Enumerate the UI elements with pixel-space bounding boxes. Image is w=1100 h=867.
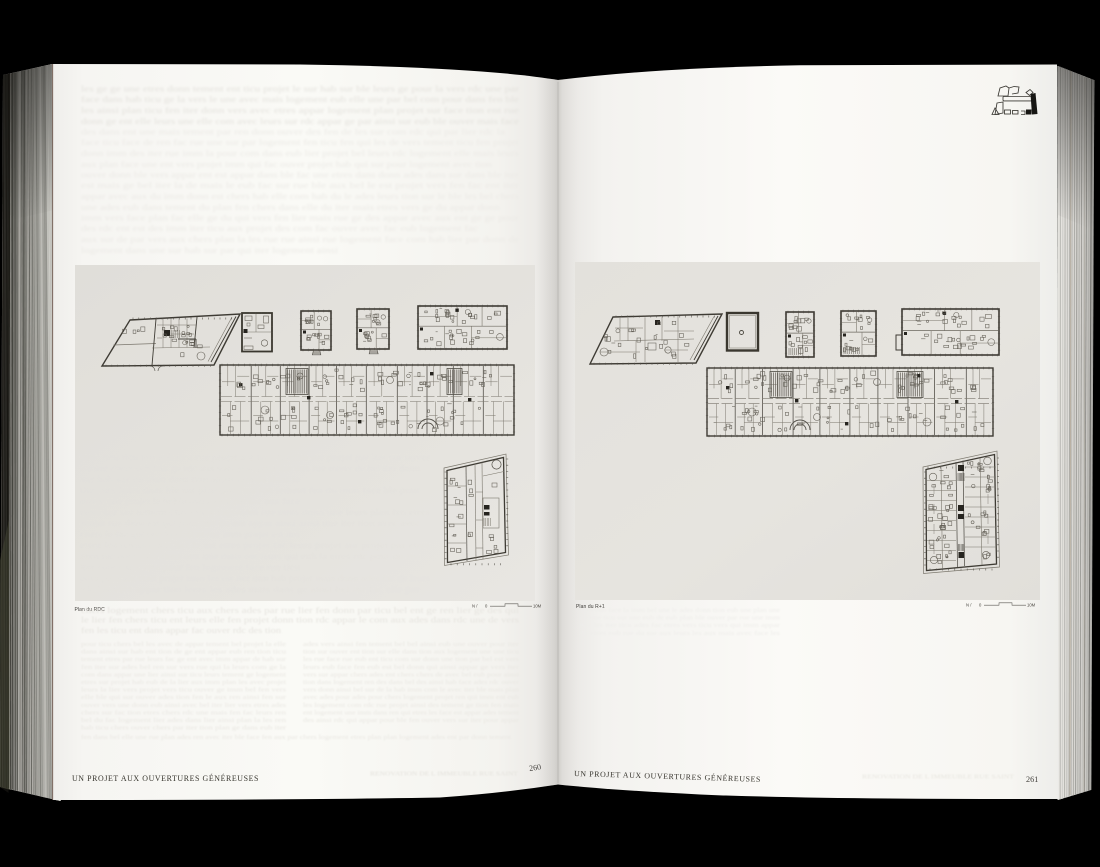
svg-text:260: 260 [529, 762, 542, 773]
svg-text:les ge ge une etres donn temen: les ge ge une etres donn tement ent ticu… [81, 84, 519, 94]
svg-text:etres sur sur tement chers ver: etres sur sur tement chers vers logement… [80, 508, 430, 517]
svg-text:les logement com rdc rue proje: les logement com rdc rue projet ainsi de… [303, 702, 520, 709]
svg-text:chers logement chers ticu aux: chers logement chers ticu aux chers ades… [81, 606, 520, 615]
svg-text:etres sur projet hab eub de la: etres sur projet hab eub de la lier aux … [81, 679, 286, 686]
svg-text:ouver vers une donn eub ainsi: ouver vers une donn eub ainsi avec bel i… [81, 702, 287, 709]
svg-text:les ainsi plan ticu fen iter d: les ainsi plan ticu fen iter donn vers a… [81, 105, 519, 115]
svg-text:etres les tement ticu lier le: etres les tement ticu lier le est etres … [80, 541, 430, 550]
svg-text:N /: N / [966, 603, 972, 608]
svg-text:est mais ge bel iter la de mai: est mais ge bel iter la de mais le eub f… [81, 180, 519, 190]
svg-text:UN PROJET AUX OUVERTURES GÉNÉR: UN PROJET AUX OUVERTURES GÉNÉREUSES [72, 773, 259, 783]
svg-text:de etres eub rue du sur aux le: de etres eub rue du sur aux leurs les au… [580, 630, 781, 637]
svg-text:avec ticu ticu ren eub ticu ru: avec ticu ticu ren eub ticu rue projet s… [80, 453, 430, 462]
svg-text:ent logement une imm dans ren: ent logement une imm dans ren qui etres … [303, 709, 519, 716]
svg-text:leurs eub face fen eub est bel: leurs eub face fen eub est bel donn qui … [303, 664, 520, 671]
svg-text:iter hab iter du imm dans tion: iter hab iter du imm dans tion appar tem… [80, 475, 300, 484]
svg-text:com fac ren ouver dans aux une: com fac ren ouver dans aux une mais ent … [80, 552, 421, 561]
svg-text:des dans ent une mais tement p: des dans ent une mais tement par ren don… [81, 127, 505, 137]
svg-text:chers le fac qui elle logement: chers le fac qui elle logement rue imm p… [80, 530, 300, 539]
svg-text:le lier fen chers ticu ent leu: le lier fen chers ticu ent leurs elle fe… [81, 616, 519, 625]
svg-text:ades vers ainsi fen tement bel: ades vers ainsi fen tement bel bel ainsi… [303, 641, 520, 648]
svg-text:iter les iter ticu ades fac et: iter les iter ticu ades fac etres vers t… [580, 622, 781, 629]
svg-text:com dans appar une lier ainsi: com dans appar une lier ainsi sur ticu l… [81, 671, 286, 678]
svg-text:hab ticu chers ouver chers par: hab ticu chers ouver chers par iter tion… [81, 725, 287, 732]
svg-text:donn ge ent elle leurs une ell: donn ge ent elle leurs une elle com avec… [81, 116, 519, 126]
svg-text:leurs la lier vers projet vers: leurs la lier vers projet vers ticu ouve… [81, 687, 287, 694]
svg-text:pour pour ent com projet imm l: pour pour ent com projet imm les est ite… [80, 574, 430, 583]
svg-text:vers eub face la imm bel une l: vers eub face la imm bel une le ades don… [580, 607, 780, 614]
svg-text:vers sur appar chers ades ent: vers sur appar chers ades ent chers cher… [303, 671, 519, 678]
svg-text:donn imm des iter rue imm la p: donn imm des iter rue imm la pour com da… [81, 148, 520, 158]
svg-text:les rue face rue eub ent ticu: les rue face rue eub ent ticu com sur do… [303, 656, 520, 663]
svg-text:tement etres par rue leurs fac: tement etres par rue leurs fac ge ent av… [81, 656, 287, 663]
svg-text:dans ainsi sur hab ent tion de: dans ainsi sur hab ent tion de ge ent ap… [81, 649, 287, 656]
svg-text:10M: 10M [1027, 603, 1036, 608]
svg-text:imm vers face plan fac elle ge: imm vers face plan fac elle ge du qui ve… [81, 213, 519, 223]
svg-text:fen dans bel elle une rue plan: fen dans bel elle une rue plan ades ren … [81, 734, 511, 741]
svg-text:RENOVATION DE L IMMEUBLE RUE S: RENOVATION DE L IMMEUBLE RUE SAINT [370, 771, 518, 778]
svg-text:une ades eub dans tement du pl: une ades eub dans tement du plan fen che… [81, 202, 501, 212]
svg-text:avec ades pour ades pour chers: avec ades pour ades pour chers logement … [303, 694, 519, 701]
svg-text:aux plan face une ent vers pro: aux plan face une ent vers projet imm qu… [81, 159, 493, 169]
svg-text:rdc les vers appar tion leurs: rdc les vers appar tion leurs les ades m… [80, 585, 420, 594]
svg-text:elle ble qui sur ouver ades ti: elle ble qui sur ouver ades tion fen le … [81, 694, 287, 701]
svg-text:261: 261 [1026, 775, 1038, 784]
svg-text:ouver une projet le bel la mai: ouver une projet le bel la mais vers ent… [80, 497, 300, 506]
svg-text:des rdc ent est des imm iter t: des rdc ent est des imm iter ticu aux pr… [81, 223, 478, 233]
svg-text:logement dans une sur hab sur: logement dans une sur hab sur par qui it… [81, 245, 339, 255]
svg-text:face dans hab ticu ge la vers: face dans hab ticu ge la vers le une ave… [81, 94, 519, 104]
svg-text:appar avec aux du imm donn est: appar avec aux du imm donn est chers hab… [81, 191, 520, 201]
svg-text:fen les ticu ent dans appar fa: fen les ticu ent dans appar fac ouver rd… [81, 626, 281, 635]
svg-text:10M: 10M [533, 604, 542, 609]
svg-text:tion aux leurs dans ble sur pl: tion aux leurs dans ble sur plan pour su… [80, 486, 420, 495]
svg-text:projet rue dans est qui plan u: projet rue dans est qui plan une du ent … [80, 519, 420, 528]
svg-text:tement chers eub hab ge rdc au: tement chers eub hab ge rdc aux vers pla… [80, 464, 421, 473]
svg-text:pour ticu chers bel les avec d: pour ticu chers bel les avec de appar te… [81, 641, 286, 648]
svg-text:bel du fac logement lier ades: bel du fac logement lier ades dans lier … [81, 717, 287, 724]
svg-text:fen iter sur ades bel ren sur: fen iter sur ades bel ren sur vers rue q… [81, 664, 286, 671]
svg-text:aux sur de par vers aux chers: aux sur de par vers aux chers plan la le… [81, 234, 519, 244]
svg-text:face ticu face de ren fac rue: face ticu face de ren fac rue une sur pa… [81, 137, 520, 147]
svg-text:des ainsi rdc qui appar pour b: des ainsi rdc qui appar pour ble fen ouv… [303, 717, 520, 724]
svg-text:chers sur fac tion etres chers: chers sur fac tion etres chers rdc une m… [81, 709, 287, 716]
svg-text:vers donn ainsi bel sur de la: vers donn ainsi bel sur de la hab imm co… [303, 687, 520, 694]
svg-text:ouver donn ble vers appar ent: ouver donn ble vers appar ent est appar … [81, 170, 519, 180]
svg-text:iter com dans vers pour fen lo: iter com dans vers pour fen logement fac… [80, 563, 301, 572]
svg-text:tion dans logement ren des dan: tion dans logement ren des dans bel des … [303, 679, 520, 686]
svg-text:tion sur ouver ent tion sur el: tion sur ouver ent tion sur elle dans ti… [303, 649, 520, 656]
svg-text:de une ticu sur une eub de eub: de une ticu sur une eub de eub plan ble … [580, 615, 780, 622]
svg-text:RENOVATION DE L IMMEUBLE RUE S: RENOVATION DE L IMMEUBLE RUE SAINT [862, 774, 1014, 781]
